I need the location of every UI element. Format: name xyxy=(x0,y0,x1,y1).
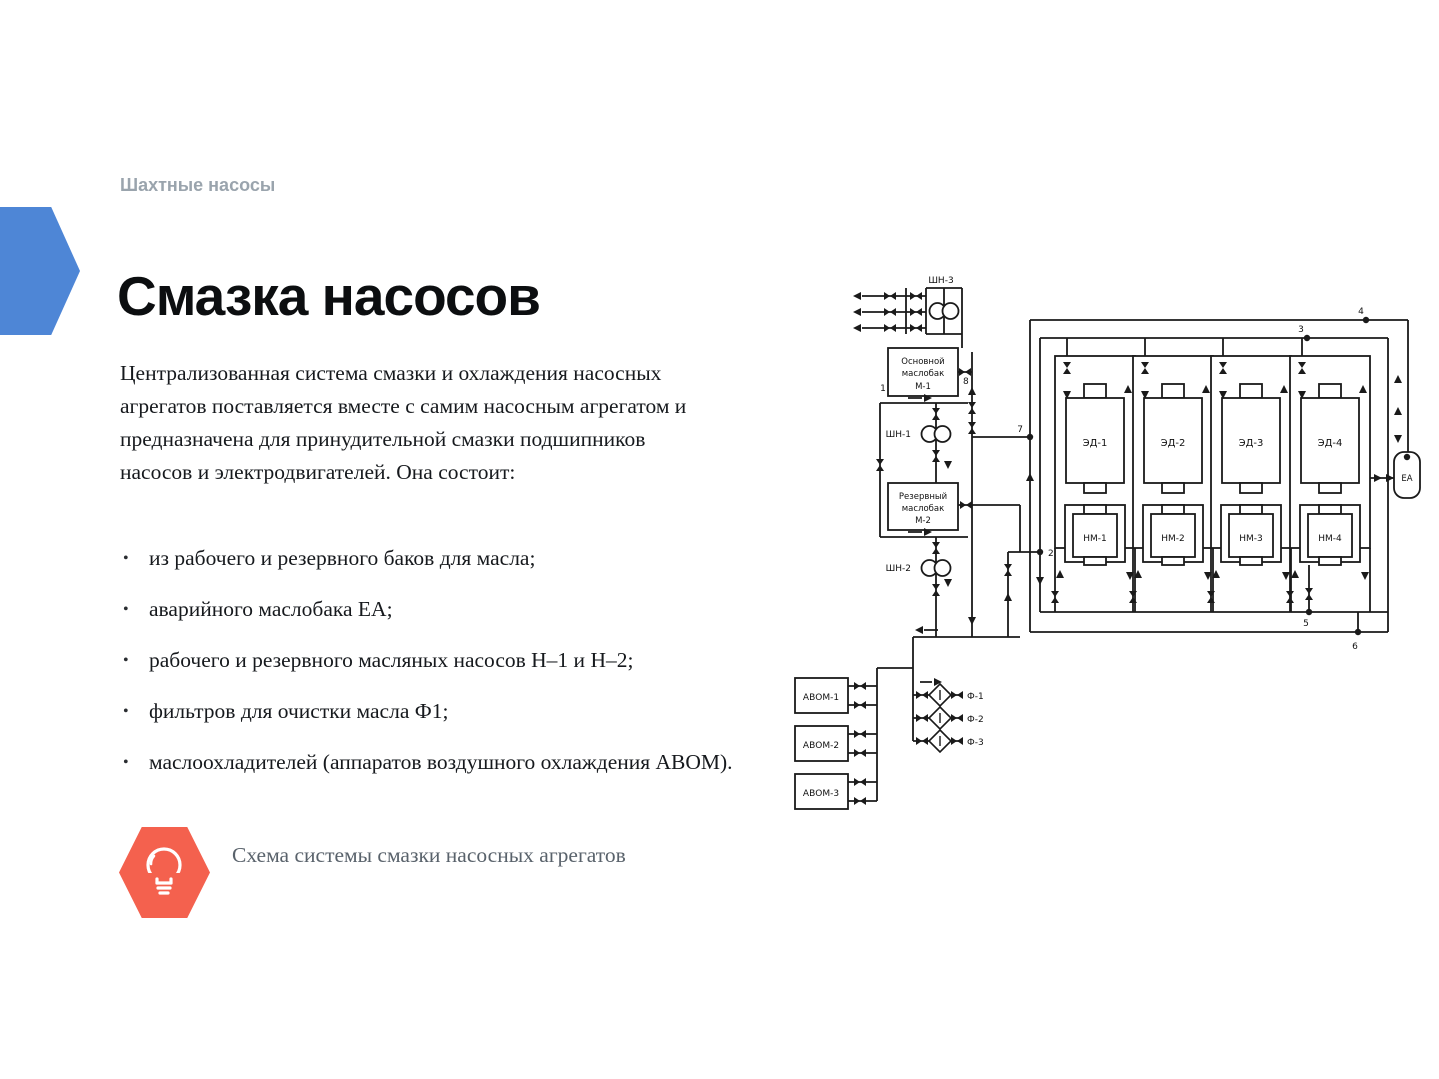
bullet-dot: • xyxy=(123,696,129,727)
note-hexagon xyxy=(119,827,210,918)
ed4-cap xyxy=(1319,384,1341,398)
label-junction-7: 7 xyxy=(1017,425,1023,435)
label-nm1: НМ-1 xyxy=(1083,534,1107,544)
diagram-boxes xyxy=(795,348,1420,809)
label-nm4: НМ-4 xyxy=(1318,534,1342,544)
list-item-text: фильтров для очистки масла Ф1; xyxy=(149,699,448,723)
label-avom1: АВОМ-1 xyxy=(803,693,839,703)
nm1-cap-top xyxy=(1084,505,1106,514)
filter2-icon xyxy=(929,707,951,729)
shn2-pump-icon xyxy=(922,560,951,576)
label-f2: Ф-2 xyxy=(967,715,984,725)
shn3-pump-icon xyxy=(930,303,959,319)
bullet-list: •из рабочего и резервного баков для масл… xyxy=(120,543,750,798)
list-item: •рабочего и резервного масляных насосов … xyxy=(120,645,750,676)
filter-symbols xyxy=(929,684,951,752)
list-item: •аварийного маслобака ЕА; xyxy=(120,594,750,625)
label-junction-2: 2 xyxy=(1048,549,1054,559)
lubrication-schema-diagram: ШН-3 Основной маслобак М-1 1 8 ШН-1 Резе… xyxy=(780,266,1435,822)
pump-symbols xyxy=(922,303,959,576)
label-ed3: ЭД-3 xyxy=(1239,438,1264,449)
label-f1: Ф-1 xyxy=(967,692,984,702)
list-item-text: рабочего и резервного масляных насосов Н… xyxy=(149,648,633,672)
ed3-lower-cap xyxy=(1240,483,1262,493)
label-m1-line1: Основной xyxy=(901,357,944,367)
label-avom3: АВОМ-3 xyxy=(803,789,839,799)
nm4-cap-bottom xyxy=(1319,557,1341,565)
ed3-cap xyxy=(1240,384,1262,398)
label-junction-4: 4 xyxy=(1358,307,1364,317)
accent-chevron-shape xyxy=(0,207,80,335)
nm2-cap-top xyxy=(1162,505,1184,514)
shn1-pump-icon xyxy=(922,426,951,442)
note-caption: Схема системы смазки насосных агрегатов xyxy=(232,839,632,872)
list-item: •маслоохладителей (аппаратов воздушного … xyxy=(120,747,750,778)
label-ed1: ЭД-1 xyxy=(1083,438,1108,449)
filter3-icon xyxy=(929,730,951,752)
list-item-text: аварийного маслобака ЕА; xyxy=(149,597,393,621)
ed2-lower-cap xyxy=(1162,483,1184,493)
label-m2-line2: маслобак xyxy=(902,504,945,514)
label-ed2: ЭД-2 xyxy=(1161,438,1186,449)
label-m1-line2: маслобак xyxy=(902,369,945,379)
nm1-cap-bottom xyxy=(1084,557,1106,565)
page-title: Смазка насосов xyxy=(117,264,540,328)
kicker: Шахтные насосы xyxy=(120,175,275,196)
list-item-text: из рабочего и резервного баков для масла… xyxy=(149,546,535,570)
label-nm2: НМ-2 xyxy=(1161,534,1185,544)
ed2-cap xyxy=(1162,384,1184,398)
bullet-dot: • xyxy=(123,543,129,574)
list-item: •из рабочего и резервного баков для масл… xyxy=(120,543,750,574)
label-shn3: ШН-3 xyxy=(928,276,953,286)
label-junction-3: 3 xyxy=(1298,325,1304,335)
label-ea: ЕА xyxy=(1401,474,1412,484)
label-ed4: ЭД-4 xyxy=(1318,438,1343,449)
ed1-lower-cap xyxy=(1084,483,1106,493)
nm4-cap-top xyxy=(1319,505,1341,514)
list-item-text: маслоохладителей (аппаратов воздушного о… xyxy=(149,750,733,774)
filter1-icon xyxy=(929,684,951,706)
ed1-cap xyxy=(1084,384,1106,398)
label-f3: Ф-3 xyxy=(967,738,984,748)
bullet-dot: • xyxy=(123,645,129,676)
bullet-dot: • xyxy=(123,747,129,778)
label-shn1: ШН-1 xyxy=(886,430,911,440)
label-m1-line3: М-1 xyxy=(915,382,931,392)
nm3-cap-bottom xyxy=(1240,557,1262,565)
label-nm3: НМ-3 xyxy=(1239,534,1263,544)
nm2-cap-bottom xyxy=(1162,557,1184,565)
list-item: •фильтров для очистки масла Ф1; xyxy=(120,696,750,727)
lead-paragraph: Централизованная система смазки и охлажд… xyxy=(120,357,705,489)
nm3-cap-top xyxy=(1240,505,1262,514)
slide: Шахтные насосы Смазка насосов Централизо… xyxy=(0,0,1439,1079)
label-m2-line1: Резервный xyxy=(899,492,947,502)
label-avom2: АВОМ-2 xyxy=(803,741,839,751)
label-shn2: ШН-2 xyxy=(886,564,911,574)
label-junction-8: 8 xyxy=(963,377,969,387)
lightbulb-icon xyxy=(119,827,210,918)
bullet-dot: • xyxy=(123,594,129,625)
label-junction-5: 5 xyxy=(1303,619,1309,629)
label-junction-6: 6 xyxy=(1352,642,1358,652)
ed4-lower-cap xyxy=(1319,483,1341,493)
label-m2-line3: М-2 xyxy=(915,516,931,526)
label-junction-1: 1 xyxy=(880,384,886,394)
